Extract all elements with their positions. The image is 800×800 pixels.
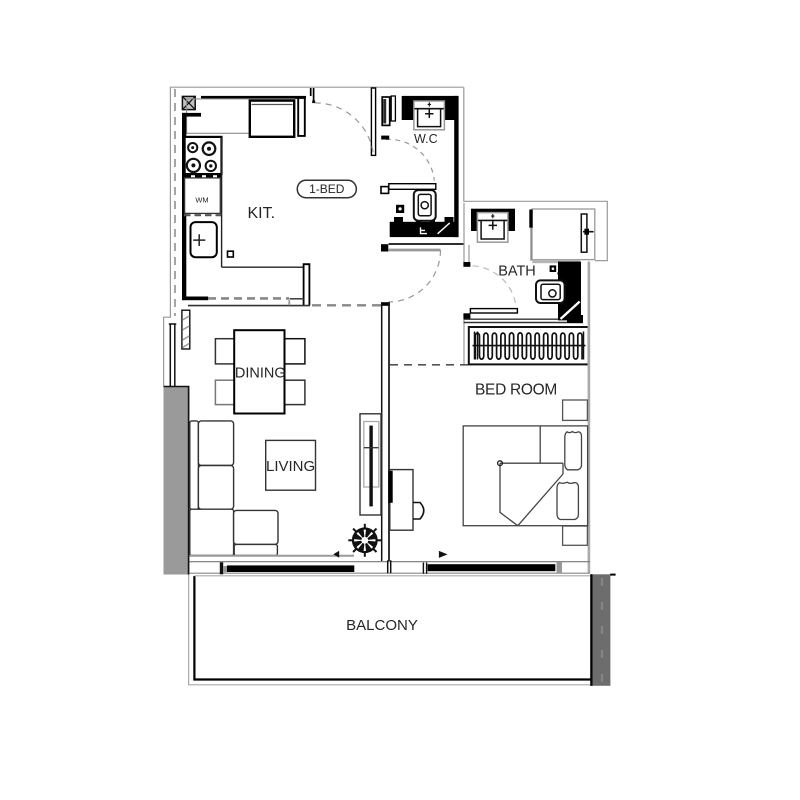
svg-text:W.C: W.C bbox=[414, 132, 438, 146]
svg-text:WM: WM bbox=[195, 196, 208, 205]
svg-text:1-BED: 1-BED bbox=[309, 182, 345, 196]
svg-text:LIVING: LIVING bbox=[266, 458, 315, 475]
svg-text:BED ROOM: BED ROOM bbox=[475, 381, 557, 398]
svg-text:BATH: BATH bbox=[498, 263, 536, 279]
svg-text:DINING: DINING bbox=[235, 366, 286, 382]
svg-text:BALCONY: BALCONY bbox=[346, 617, 418, 634]
svg-text:KIT.: KIT. bbox=[248, 205, 276, 222]
